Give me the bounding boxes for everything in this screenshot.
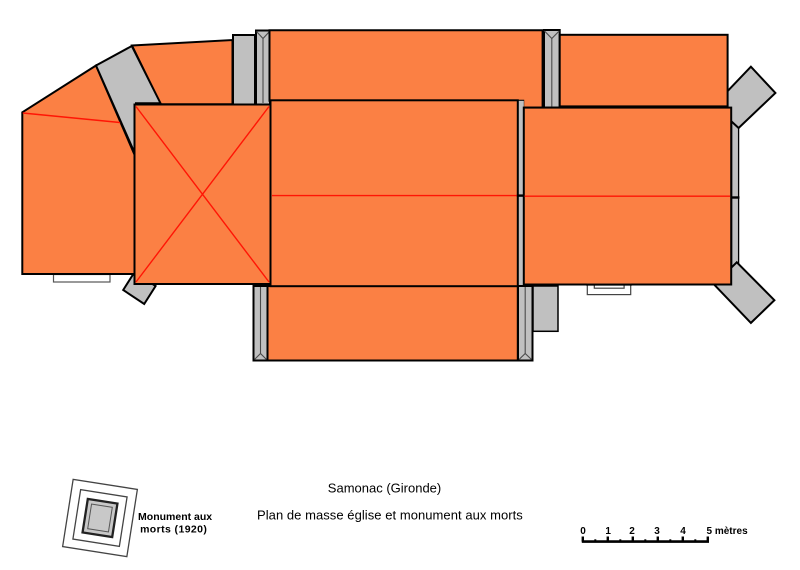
svg-text:0: 0 bbox=[580, 526, 586, 537]
svg-text:2: 2 bbox=[629, 526, 635, 537]
svg-text:Monument aux: Monument aux bbox=[138, 511, 212, 523]
svg-text:morts (1920): morts (1920) bbox=[140, 523, 207, 535]
svg-text:Samonac (Gironde): Samonac (Gironde) bbox=[328, 480, 441, 495]
svg-text:3: 3 bbox=[654, 526, 660, 537]
svg-text:Plan de masse église et monume: Plan de masse église et monument aux mor… bbox=[257, 508, 523, 523]
svg-text:5 mètres: 5 mètres bbox=[707, 526, 749, 537]
svg-text:4: 4 bbox=[680, 526, 686, 537]
svg-text:1: 1 bbox=[605, 526, 611, 537]
